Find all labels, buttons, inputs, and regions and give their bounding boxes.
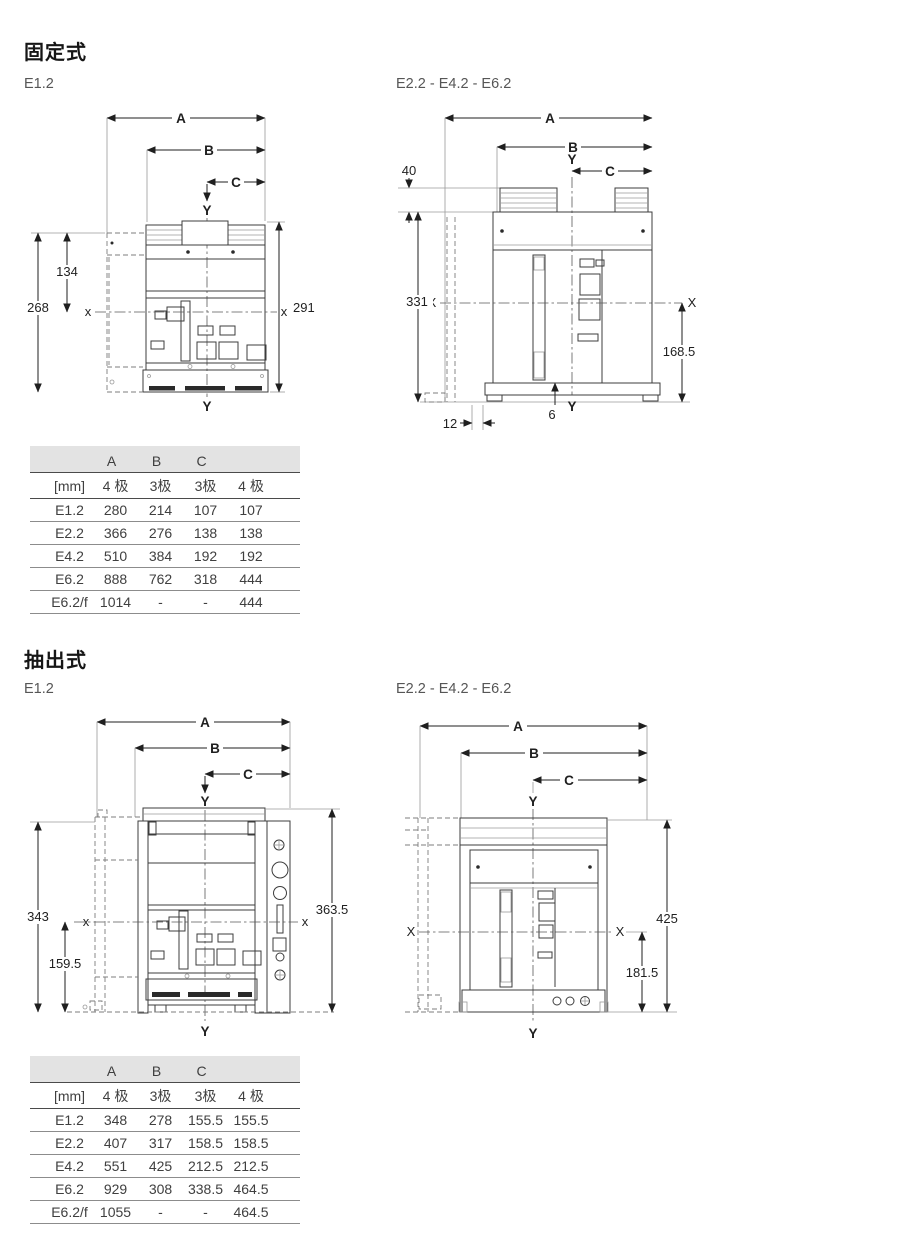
row-label: E6.2/f [30,594,93,610]
table-cell: 278 [138,1112,183,1128]
dim-height-left: 268 [27,300,49,315]
dim-height-left: 343 [27,909,49,924]
table-cell: 155.5 [228,1112,274,1128]
dim-label-c: C [564,773,574,788]
table-cell [30,469,93,472]
x-axis: X X [428,295,697,310]
table-cell: 464.5 [228,1181,274,1197]
table-cell: 138 [228,525,274,541]
table-cell: 212.5 [228,1158,274,1174]
table-letter-header-row: A B C [30,1056,300,1083]
table-cell: 425 [138,1158,183,1174]
figure-caption-fixed-e22: E2.2 - E4.2 - E6.2 [396,76,511,92]
door-outline-dashed [107,233,146,392]
dimension-lines-top: A B C Y [107,110,265,233]
table-cell: 551 [93,1158,138,1174]
table-letter-header-row: A B C [30,446,300,473]
table-cell: 107 [228,502,274,518]
dimension-table-drawout: A B C [mm] 4 极 3极 3极 4 极 E1.2 348 278 15… [30,1056,300,1224]
table-cell: 510 [93,548,138,564]
table-unit-row: [mm] 4 极 3极 3极 4 极 [30,473,300,499]
table-row: E2.2 366 276 138 138 [30,522,300,545]
dim-height-inner: 134 [56,264,78,279]
door-outline-dashed [405,818,460,1012]
dim-label-a: A [513,719,523,734]
dimension-lines-top: A B C Y [97,714,290,817]
dim-label-c: C [231,175,241,190]
table-unit-row: [mm] 4 极 3极 3极 4 极 [30,1083,300,1109]
table-cell: 280 [93,502,138,518]
row-label: E6.2 [30,1181,93,1197]
table-cell: 444 [228,594,274,610]
col-header-b: B [134,1063,179,1082]
dim-label-b: B [529,746,539,761]
col-header-a: A [89,1063,134,1082]
dimension-lines-top: A B C Y [420,718,647,820]
axis-label-x-right: X [616,924,625,939]
table-row: E1.2 280 214 107 107 [30,499,300,522]
axis-label-y-bottom: Y [567,399,576,414]
table-cell: 888 [93,571,138,587]
table-cell: 214 [138,502,183,518]
dimension-lines-left: 331 [403,212,433,402]
dimension-lines-right: 363.5 [313,809,352,1012]
unit-cell: 4 极 [228,476,274,496]
table-cell: 929 [93,1181,138,1197]
dim-label-c: C [243,767,253,782]
axis-label-x-right: X [688,295,697,310]
x-axis: x x [85,304,288,319]
dimension-lines-right: 291 [267,222,315,392]
dim-label-b: B [210,741,220,756]
base-dims: 6 12 [443,383,556,431]
drawing-drawout-e12: A B C Y [22,705,352,1040]
table-row: E1.2 348 278 155.5 155.5 [30,1109,300,1132]
axis-label-y-top: Y [200,794,209,809]
dimension-lines-left: 268 134 [25,233,105,392]
axis-label-y-bottom: Y [528,1026,537,1041]
dim-height-right: 363.5 [316,902,349,917]
drawing-fixed-e12: A B C Y [25,105,335,417]
table-row: E6.2 929 308 338.5 464.5 [30,1178,300,1201]
table-cell: 348 [93,1112,138,1128]
axis-label-x-left: x [85,304,92,319]
dim-height-right: 425 [656,911,678,926]
axis-label-x-left: X [407,924,416,939]
axis-label-y-top: Y [202,203,211,218]
axis-label-y-top: Y [567,152,576,167]
x-axis: x x [74,914,309,929]
axis-label-x-right: x [281,304,288,319]
table-row: E6.2/f 1055 - - 464.5 [30,1201,300,1224]
x-axis: X X [407,924,647,939]
unit-cell-mm: [mm] [30,478,93,494]
row-label: E2.2 [30,1135,93,1151]
col-header-b: B [134,453,179,472]
table-cell: 464.5 [228,1204,274,1220]
axis-label-y-top: Y [528,794,537,809]
section-title-drawout: 抽出式 [24,644,87,673]
table-cell: - [138,594,183,610]
unit-cell: 3极 [183,476,228,496]
dim-height-lower-left: 159.5 [49,956,82,971]
door-outline-dashed [83,810,143,1012]
dim-terminal-height: 40 [402,163,416,178]
table-row: E6.2/f 1014 - - 444 [30,591,300,614]
table-cell: 407 [93,1135,138,1151]
figure-caption-drawout-e22: E2.2 - E4.2 - E6.2 [396,681,511,697]
table-row: E4.2 510 384 192 192 [30,545,300,568]
table-cell [228,1079,274,1082]
dim-label-a: A [545,111,555,126]
unit-cell: 4 极 [93,476,138,496]
dim-height-lower-right: 181.5 [626,965,659,980]
section-title-fixed: 固定式 [24,36,87,65]
breaker-body [420,177,690,402]
row-label: E4.2 [30,548,93,564]
drawing-fixed-e22-e42-e62: A B Y C 40 [390,105,720,445]
row-label: E6.2/f [30,1204,93,1220]
dimension-lines-right: 425 181.5 [623,820,683,1012]
col-header-a: A [89,453,134,472]
col-header-c: C [179,1063,224,1082]
row-label: E1.2 [30,1112,93,1128]
table-cell: 138 [183,525,228,541]
dim-base-gap: 6 [548,407,555,422]
drawing-drawout-e22-e42-e62: A B C Y [395,705,695,1045]
dim-label-b: B [204,143,214,158]
row-label: E6.2 [30,571,93,587]
col-header-c: C [179,453,224,472]
figure-caption-fixed-e12: E1.2 [24,76,54,92]
terminal-height-dim: 40 [398,163,500,223]
breaker-body [143,218,268,397]
table-cell: 762 [138,571,183,587]
table-cell: 1014 [93,594,138,610]
unit-cell: 4 极 [93,1086,138,1106]
dimension-table-fixed: A B C [mm] 4 极 3极 3极 4 极 E1.2 280 214 10… [30,446,300,614]
table-cell: 192 [183,548,228,564]
dimension-lines-top: A B Y C [445,110,652,402]
cradle-and-breaker [67,808,340,1021]
table-cell: 338.5 [183,1181,228,1197]
table-cell: - [183,594,228,610]
table-cell: 308 [138,1181,183,1197]
table-cell: 1055 [93,1204,138,1220]
axis-label-x-left: x [83,914,90,929]
axis-label-y-bottom: Y [200,1024,209,1039]
table-cell [228,469,274,472]
axis-label-y-bottom: Y [202,399,211,414]
cradle-and-breaker [459,809,677,1023]
table-cell: 384 [138,548,183,564]
table-cell: - [138,1204,183,1220]
dim-foot-offset: 12 [443,416,457,431]
table-row: E6.2 888 762 318 444 [30,568,300,591]
axis-label-x-right: x [302,914,309,929]
table-cell: 317 [138,1135,183,1151]
dim-height-lower-right: 168.5 [663,344,696,359]
unit-cell: 4 极 [228,1086,274,1106]
dim-label-a: A [176,111,186,126]
table-cell: - [183,1204,228,1220]
table-cell: 107 [183,502,228,518]
table-cell: 318 [183,571,228,587]
row-label: E2.2 [30,525,93,541]
dimension-lines-right: 168.5 [656,303,702,402]
unit-cell: 3极 [138,1086,183,1106]
table-cell: 155.5 [183,1112,228,1128]
dim-height-right: 291 [293,300,315,315]
dim-label-a: A [200,715,210,730]
table-row: E2.2 407 317 158.5 158.5 [30,1132,300,1155]
dim-height-left: 331 [406,294,428,309]
figure-caption-drawout-e12: E1.2 [24,681,54,697]
table-cell: 212.5 [183,1158,228,1174]
row-label: E1.2 [30,502,93,518]
table-cell: 158.5 [228,1135,274,1151]
table-cell: 192 [228,548,274,564]
table-cell [30,1079,93,1082]
unit-cell-mm: [mm] [30,1088,93,1104]
dim-label-c: C [605,164,615,179]
table-cell: 276 [138,525,183,541]
row-label: E4.2 [30,1158,93,1174]
table-row: E4.2 551 425 212.5 212.5 [30,1155,300,1178]
unit-cell: 3极 [138,476,183,496]
table-cell: 366 [93,525,138,541]
table-cell: 158.5 [183,1135,228,1151]
unit-cell: 3极 [183,1086,228,1106]
table-cell: 444 [228,571,274,587]
catalog-page: 固定式 E1.2 E2.2 - E4.2 - E6.2 A B C Y [0,0,900,1258]
